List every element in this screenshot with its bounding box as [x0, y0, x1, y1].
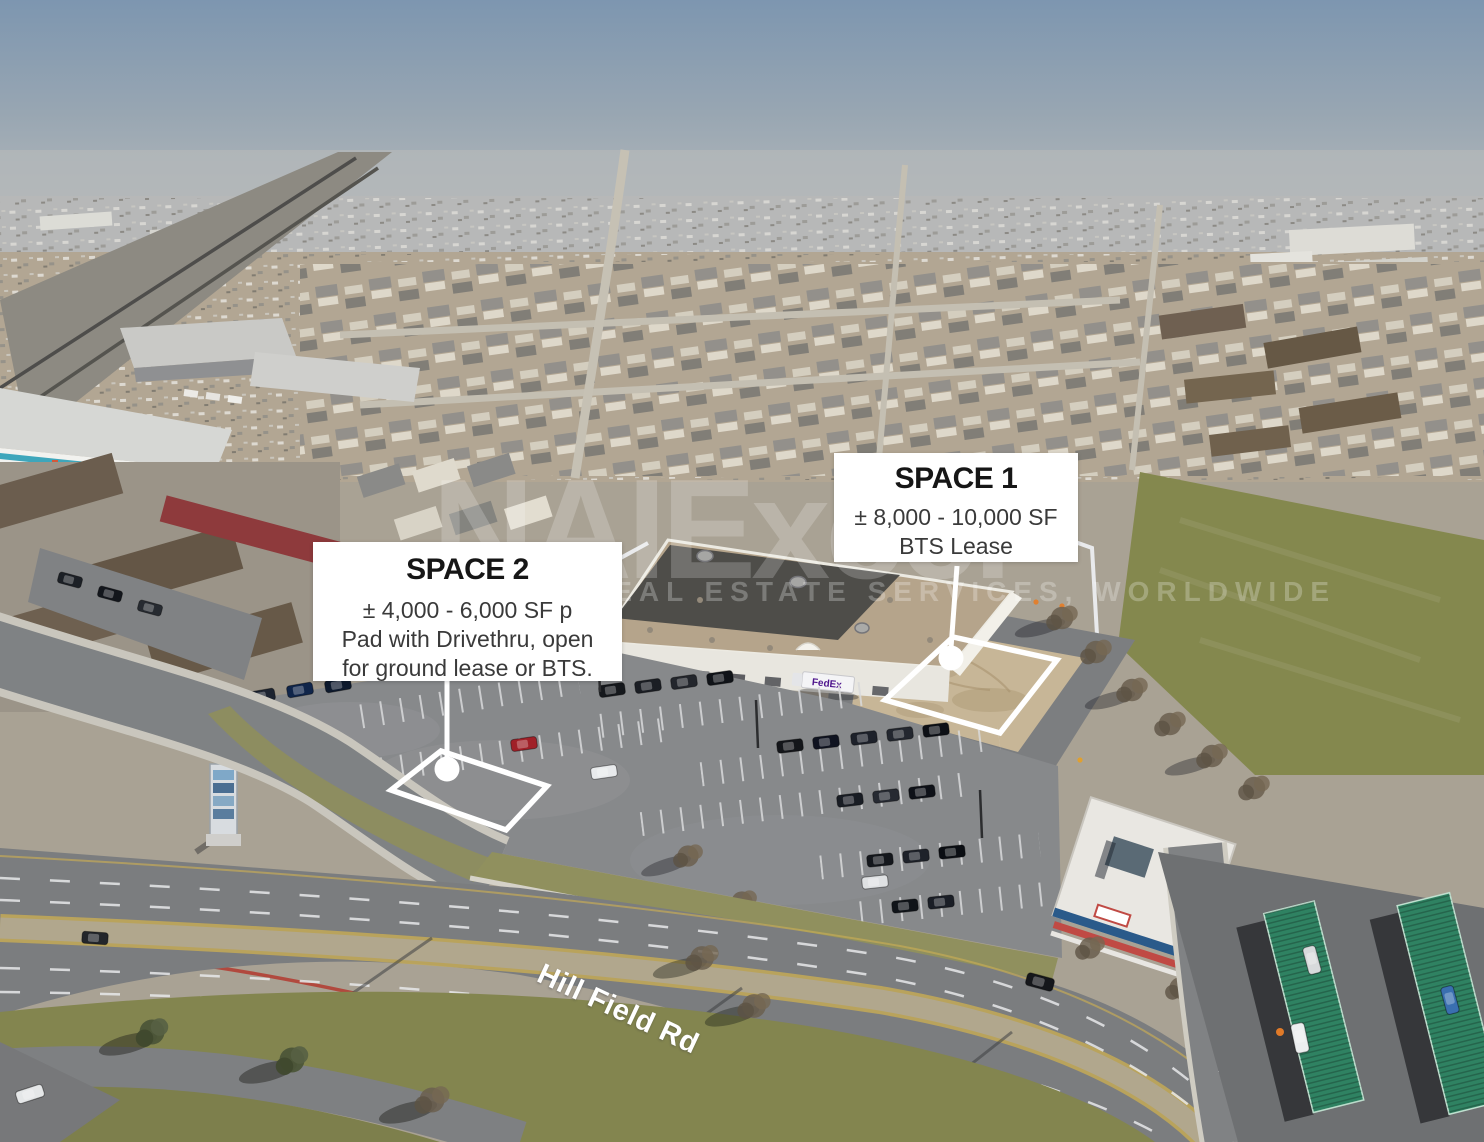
space2-line3: for ground lease or BTS.	[313, 654, 622, 683]
space2-title: SPACE 2	[313, 553, 622, 587]
space2-leader-dot	[435, 757, 460, 782]
space1-site-outline	[885, 637, 1057, 733]
space2-line1: ± 4,000 - 6,000 SF p	[313, 596, 622, 625]
space1-line2: BTS Lease	[834, 532, 1078, 561]
space1-callout: SPACE 1 ± 8,000 - 10,000 SF BTS Lease	[834, 453, 1078, 562]
space1-title: SPACE 1	[834, 462, 1078, 496]
callout-overlay	[0, 0, 1484, 1142]
space1-leader-dot	[939, 646, 964, 671]
space2-callout: SPACE 2 ± 4,000 - 6,000 SF p Pad with Dr…	[313, 542, 622, 681]
aerial-photo: FedEx	[0, 0, 1484, 1142]
space2-site-outline	[391, 751, 547, 830]
space2-line2: Pad with Drivethru, open	[313, 625, 622, 654]
space1-line1: ± 8,000 - 10,000 SF	[834, 503, 1078, 532]
